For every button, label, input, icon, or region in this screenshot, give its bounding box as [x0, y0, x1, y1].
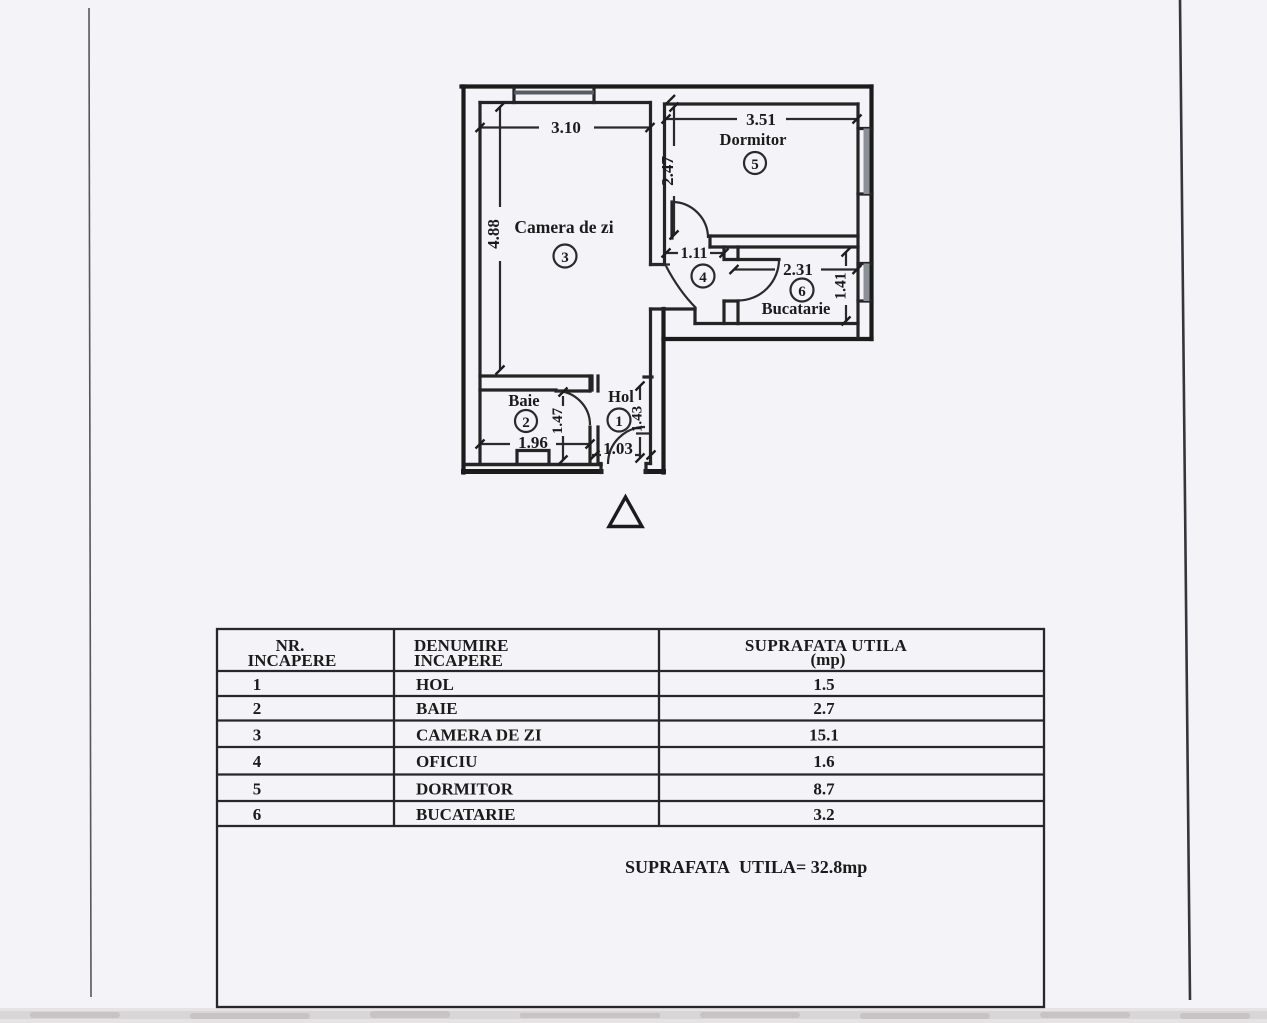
svg-text:2.31: 2.31: [783, 260, 813, 279]
svg-text:3: 3: [253, 726, 262, 745]
svg-text:4: 4: [699, 270, 707, 286]
svg-text:3.2: 3.2: [813, 805, 834, 824]
svg-text:INCAPERE: INCAPERE: [414, 651, 503, 670]
svg-text:1.96: 1.96: [518, 433, 548, 452]
svg-text:(mp): (mp): [811, 650, 846, 669]
svg-text:6: 6: [253, 805, 262, 824]
svg-text:BUCATARIE: BUCATARIE: [416, 805, 516, 824]
svg-text:INCAPERE: INCAPERE: [248, 651, 337, 670]
svg-text:1: 1: [253, 675, 262, 694]
svg-text:1.43: 1.43: [630, 406, 646, 432]
svg-text:6: 6: [798, 284, 806, 300]
svg-text:Dormitor: Dormitor: [720, 130, 787, 149]
svg-text:4: 4: [253, 752, 262, 771]
svg-text:SUPRAFATA UTILA= 32.8mp: SUPRAFATA UTILA= 32.8mp: [625, 857, 867, 877]
svg-text:1.41: 1.41: [833, 272, 850, 299]
svg-text:HOL: HOL: [416, 675, 454, 694]
svg-text:3.51: 3.51: [746, 110, 776, 129]
svg-text:1.5: 1.5: [813, 675, 834, 694]
svg-text:2.47: 2.47: [658, 156, 677, 186]
svg-text:5: 5: [253, 780, 262, 799]
svg-text:1.11: 1.11: [680, 245, 707, 262]
svg-text:2: 2: [253, 699, 262, 718]
svg-text:15.1: 15.1: [809, 726, 839, 745]
svg-text:2: 2: [522, 415, 530, 431]
svg-text:CAMERA DE ZI: CAMERA DE ZI: [416, 726, 542, 745]
svg-text:2.7: 2.7: [813, 699, 835, 718]
svg-text:3: 3: [561, 250, 569, 266]
svg-text:BAIE: BAIE: [416, 699, 458, 718]
svg-text:8.7: 8.7: [813, 780, 835, 799]
svg-text:1.03: 1.03: [603, 439, 633, 458]
svg-text:5: 5: [751, 157, 759, 173]
svg-text:1: 1: [615, 414, 623, 430]
svg-text:Camera de zi: Camera de zi: [514, 217, 613, 237]
svg-text:3.10: 3.10: [551, 118, 581, 137]
svg-text:DORMITOR: DORMITOR: [416, 780, 514, 799]
svg-text:OFICIU: OFICIU: [416, 752, 477, 771]
svg-text:Hol: Hol: [608, 387, 634, 406]
svg-text:Baie: Baie: [508, 391, 539, 410]
svg-text:Bucatarie: Bucatarie: [762, 299, 831, 318]
svg-text:1.47: 1.47: [550, 407, 566, 434]
svg-text:4.88: 4.88: [484, 219, 503, 249]
svg-text:1.6: 1.6: [813, 752, 834, 771]
